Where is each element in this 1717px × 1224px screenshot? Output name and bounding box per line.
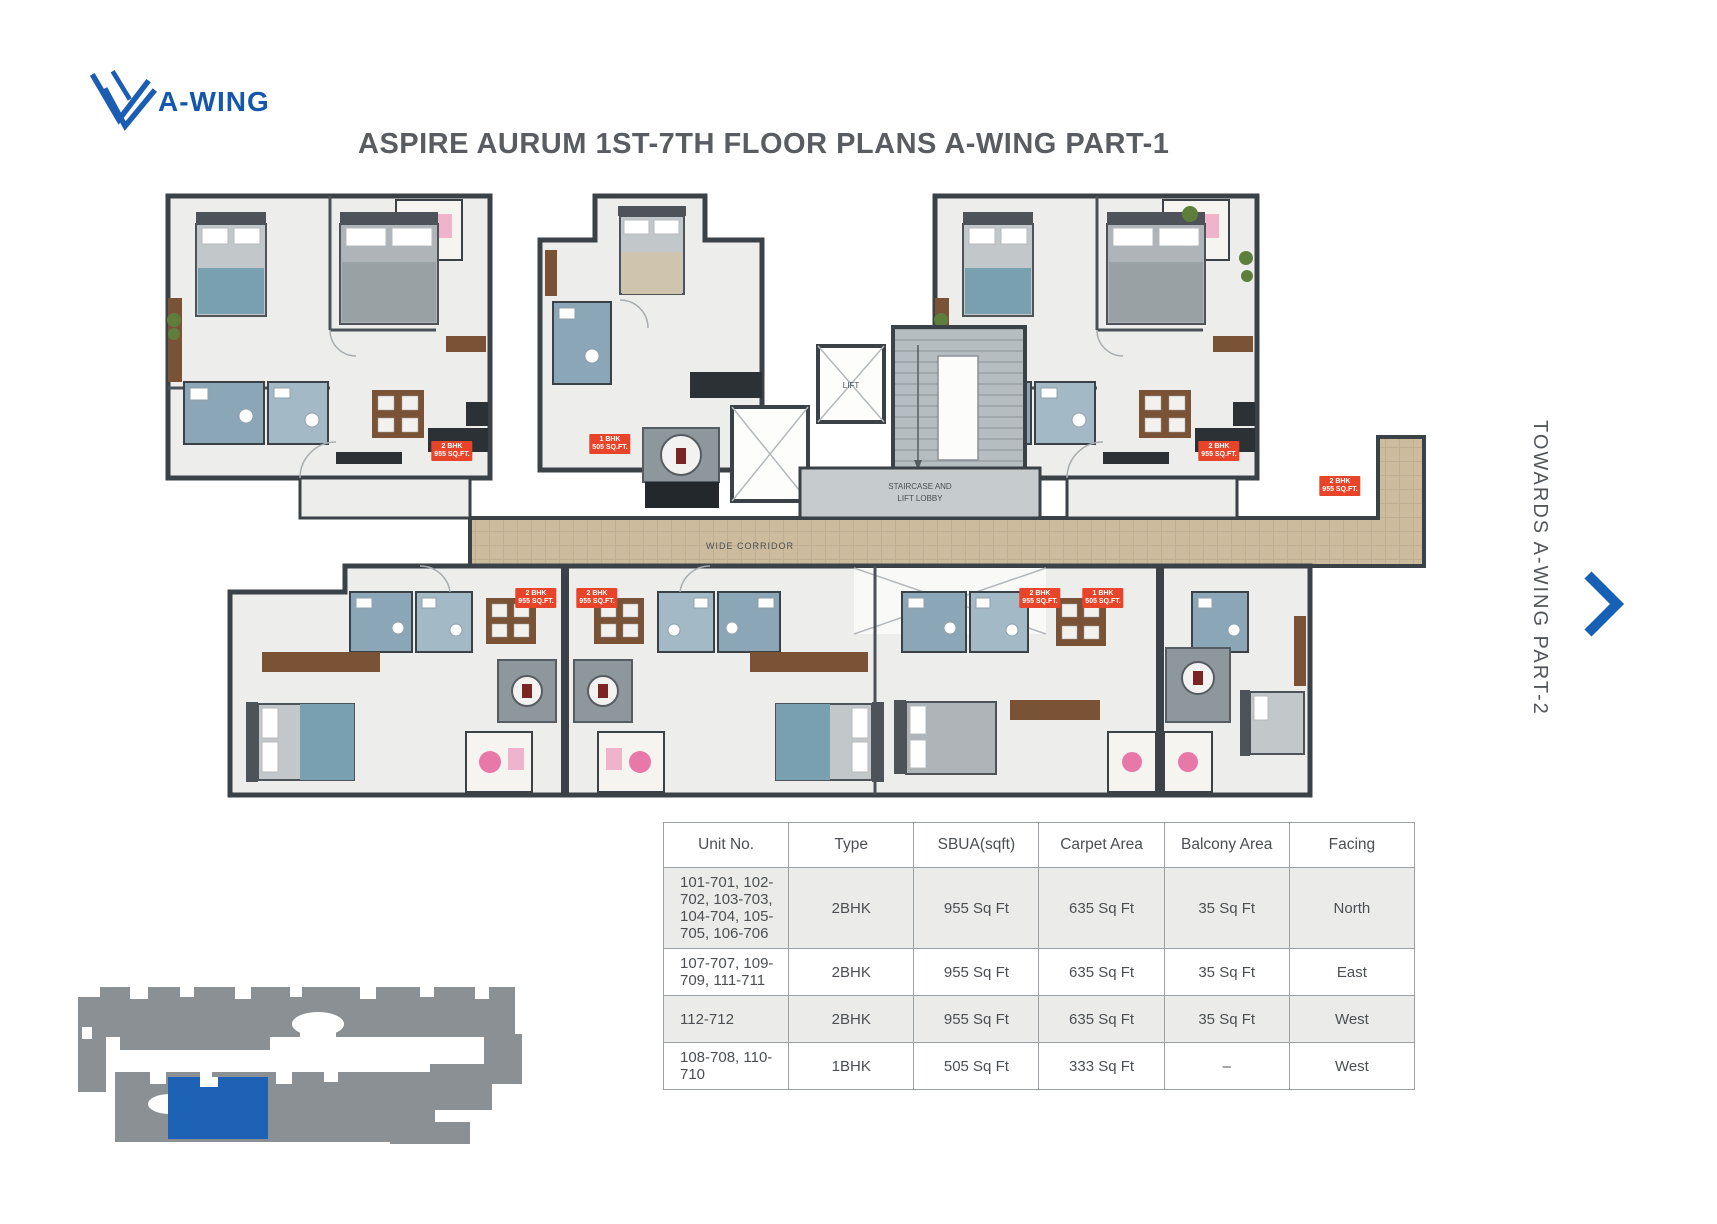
table-cell: 112-712 [664,996,789,1043]
kitchen-counter [645,482,719,508]
table-cell: 955 Sq Ft [914,949,1039,996]
table-cell: 1BHK [789,1043,914,1090]
floor-plan: WIDE CORRIDOR [150,190,1450,815]
table-cell: 107-707, 109-709, 111-711 [664,949,789,996]
table-header-cell: Carpet Area [1039,823,1164,868]
table-cell: 35 Sq Ft [1164,949,1289,996]
table-cell: 108-708, 110-710 [664,1043,789,1090]
unit-table: Unit No.TypeSBUA(sqft)Carpet AreaBalcony… [663,822,1415,1090]
lift-label: LIFT [843,381,860,390]
lobby-label-line2: LIFT LOBBY [897,494,943,503]
table-cell: 505 Sq Ft [914,1043,1039,1090]
wardrobe [1010,700,1100,720]
bathroom [553,302,611,384]
table-header-cell: Type [789,823,914,868]
service-shaft [732,407,808,501]
unit-type-label: 2 BHK 955 SQ.FT. [1019,588,1060,608]
awing-logo-label: A-WING [158,86,270,118]
unit-1bhk-top [540,196,762,508]
table-header-cell: Unit No. [664,823,789,868]
table-cell: 35 Sq Ft [1164,996,1289,1043]
key-plan-highlight [168,1077,268,1139]
table-cell: 2BHK [789,949,914,996]
unit-table-body: 101-701, 102-702, 103-703, 104-704, 105-… [664,868,1415,1090]
kitchen-counter [690,372,762,398]
table-cell: 955 Sq Ft [914,868,1039,949]
wardrobe [1294,616,1306,686]
page-title: ASPIRE AURUM 1ST-7TH FLOOR PLANS A-WING … [358,128,1169,161]
unit-type-label: 2 BHK 955 SQ.FT. [1319,476,1360,496]
table-cell: West [1289,1043,1414,1090]
unit-type-label: 1 BHK 505 SQ.FT. [589,434,630,454]
table-cell: East [1289,949,1414,996]
unit-type-label: 2 BHK 955 SQ.FT. [431,441,472,461]
utility-box [643,428,719,482]
utility-box [1166,648,1230,722]
table-cell: – [1164,1043,1289,1090]
lift-lobby: STAIRCASE AND LIFT LOBBY [800,468,1040,518]
table-cell: 2BHK [789,868,914,949]
table-header-cell: SBUA(sqft) [914,823,1039,868]
unit-type-label: 2 BHK 955 SQ.FT. [515,588,556,608]
table-row: 112-7122BHK955 Sq Ft635 Sq Ft35 Sq FtWes… [664,996,1415,1043]
table-row: 101-701, 102-702, 103-703, 104-704, 105-… [664,868,1415,949]
table-cell: 35 Sq Ft [1164,868,1289,949]
plant-icon [1182,206,1198,222]
table-header-cell: Balcony Area [1164,823,1289,868]
awing-logo-icon [86,68,158,134]
table-cell: 635 Sq Ft [1039,996,1164,1043]
unit-type-label: 2 BHK 955 SQ.FT. [576,588,617,608]
table-cell: 635 Sq Ft [1039,868,1164,949]
table-cell: 101-701, 102-702, 103-703, 104-704, 105-… [664,868,789,949]
staircase [893,327,1025,487]
bed [618,206,686,294]
unit-table-header: Unit No.TypeSBUA(sqft)Carpet AreaBalcony… [664,823,1415,868]
table-row: 107-707, 109-709, 111-7112BHK955 Sq Ft63… [664,949,1415,996]
table-row: 108-708, 110-7101BHK505 Sq Ft333 Sq Ft–W… [664,1043,1415,1090]
lobby-label-line1: STAIRCASE AND [888,482,952,491]
table-cell: 333 Sq Ft [1039,1043,1164,1090]
bathroom [1192,592,1248,652]
table-cell: 2BHK [789,996,914,1043]
table-cell: North [1289,868,1414,949]
balcony [1108,732,1156,792]
bed [894,700,996,774]
lift: LIFT [818,346,884,422]
table-cell: 635 Sq Ft [1039,949,1164,996]
chevron-right-icon [1583,570,1625,640]
balcony [1164,732,1212,792]
unit-type-label: 2 BHK 955 SQ.FT. [1198,441,1239,461]
table-cell: West [1289,996,1414,1043]
table-header-cell: Facing [1289,823,1414,868]
bed [1240,690,1304,756]
unit-type-label: 1 BHK 505 SQ.FT. [1082,588,1123,608]
wardrobe [545,250,557,296]
bathroom [902,592,966,652]
key-plan [60,972,530,1162]
towards-part2-note: TOWARDS A-WING PART-2 [1528,420,1551,740]
table-cell: 955 Sq Ft [914,996,1039,1043]
corridor-label: WIDE CORRIDOR [706,541,794,551]
brochure-page: A-WING ASPIRE AURUM 1ST-7TH FLOOR PLANS … [0,0,1717,1224]
